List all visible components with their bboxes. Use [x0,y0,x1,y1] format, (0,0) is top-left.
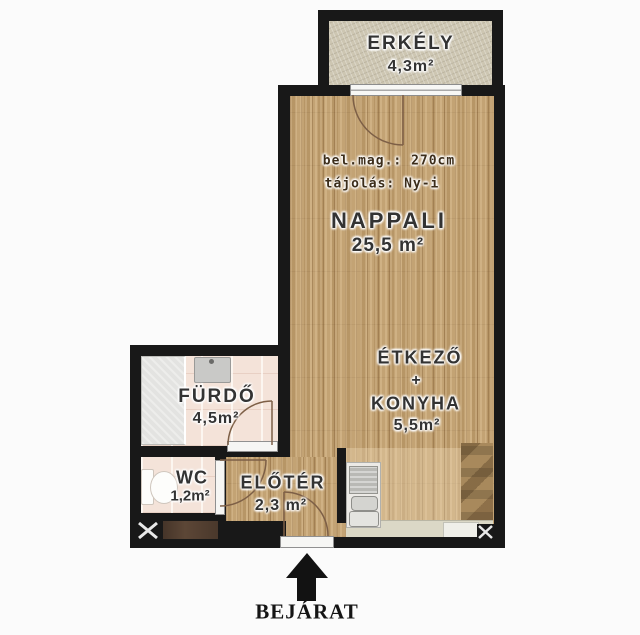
label-living-area: 25,5 m² [352,235,424,257]
label-wc-name: WC [176,468,208,489]
label-hallway-area: 2,3 m² [255,497,307,515]
label-bathroom-area: 4,5m² [193,410,240,428]
label-wc-area: 1,2m² [170,488,209,505]
label-dining-line3: KONYHA [371,394,461,415]
shaft-right-icon [477,524,494,540]
label-entrance: BEJÁRAT [255,600,358,625]
entrance-arrow-shaft [297,576,316,601]
balcony-door-arc [353,95,403,145]
label-balcony-name: ERKÉLY [367,33,454,55]
door-swing-overlay [0,0,640,635]
label-hallway-name: ELŐTÉR [240,473,325,494]
label-living-name: NAPPALI [331,208,447,234]
floorplan-canvas: ERKÉLY 4,3m² bel.mag.: 270cm tájolás: Ny… [0,0,640,635]
label-dining-line1: ÉTKEZŐ [377,348,462,369]
entrance-arrow-icon [286,553,328,578]
label-ceiling-height: bel.mag.: 270cm [323,154,455,169]
label-balcony-area: 4,3m² [388,58,435,76]
label-dining-area: 5,5m² [394,417,441,435]
label-dining-line2: + [411,372,422,390]
shaft-left-icon [137,521,159,540]
label-bathroom-name: FÜRDŐ [178,386,256,408]
label-orientation: tájolás: Ny-i [325,177,440,192]
